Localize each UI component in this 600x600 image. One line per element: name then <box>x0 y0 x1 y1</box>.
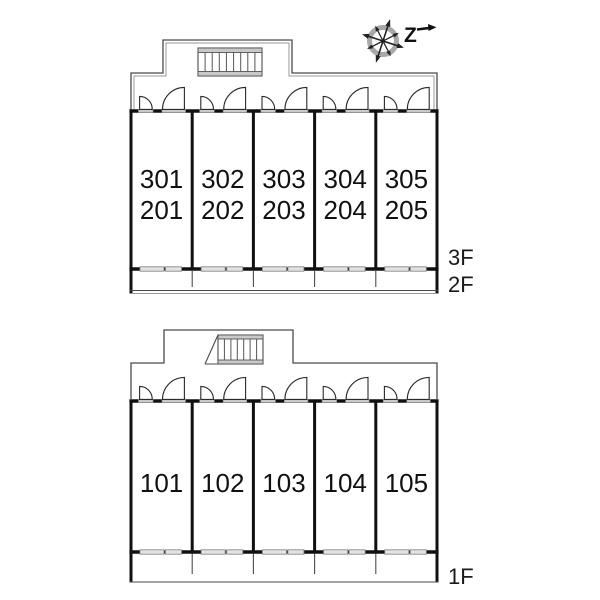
floor-label-1f: 1F <box>448 564 474 589</box>
window-icon <box>324 267 366 271</box>
window-icon <box>262 550 304 554</box>
window-icon <box>385 267 427 271</box>
window-icon <box>140 550 182 554</box>
window-icon <box>324 550 366 554</box>
room-label-204: 204 <box>324 195 367 225</box>
window-icon <box>140 267 182 271</box>
room-label-304: 304 <box>324 164 367 194</box>
window-icon <box>201 550 243 554</box>
room-label-201: 201 <box>140 195 183 225</box>
floor-plan-canvas: Z <box>0 0 600 600</box>
floor-label-2f: 2F <box>448 272 474 297</box>
room-label-103: 103 <box>262 468 305 498</box>
window-icon <box>385 550 427 554</box>
lower-room-labels: 101 102 103 104 105 <box>140 468 428 498</box>
room-label-305: 305 <box>385 164 428 194</box>
room-label-102: 102 <box>201 468 244 498</box>
window-icon <box>201 267 243 271</box>
upper-room-labels: 301 201 302 202 303 203 304 204 305 205 <box>140 164 428 225</box>
window-icon <box>262 267 304 271</box>
room-label-105: 105 <box>385 468 428 498</box>
compass-north-label: Z <box>404 24 417 47</box>
room-label-205: 205 <box>385 195 428 225</box>
room-label-303: 303 <box>262 164 305 194</box>
room-label-302: 302 <box>201 164 244 194</box>
room-label-203: 203 <box>262 195 305 225</box>
floor-label-3f: 3F <box>448 245 474 270</box>
room-label-202: 202 <box>201 195 244 225</box>
room-label-301: 301 <box>140 164 183 194</box>
room-label-104: 104 <box>324 468 367 498</box>
floor-plan-page: Z <box>0 0 600 600</box>
compass-center-dot <box>381 39 385 43</box>
room-label-101: 101 <box>140 468 183 498</box>
